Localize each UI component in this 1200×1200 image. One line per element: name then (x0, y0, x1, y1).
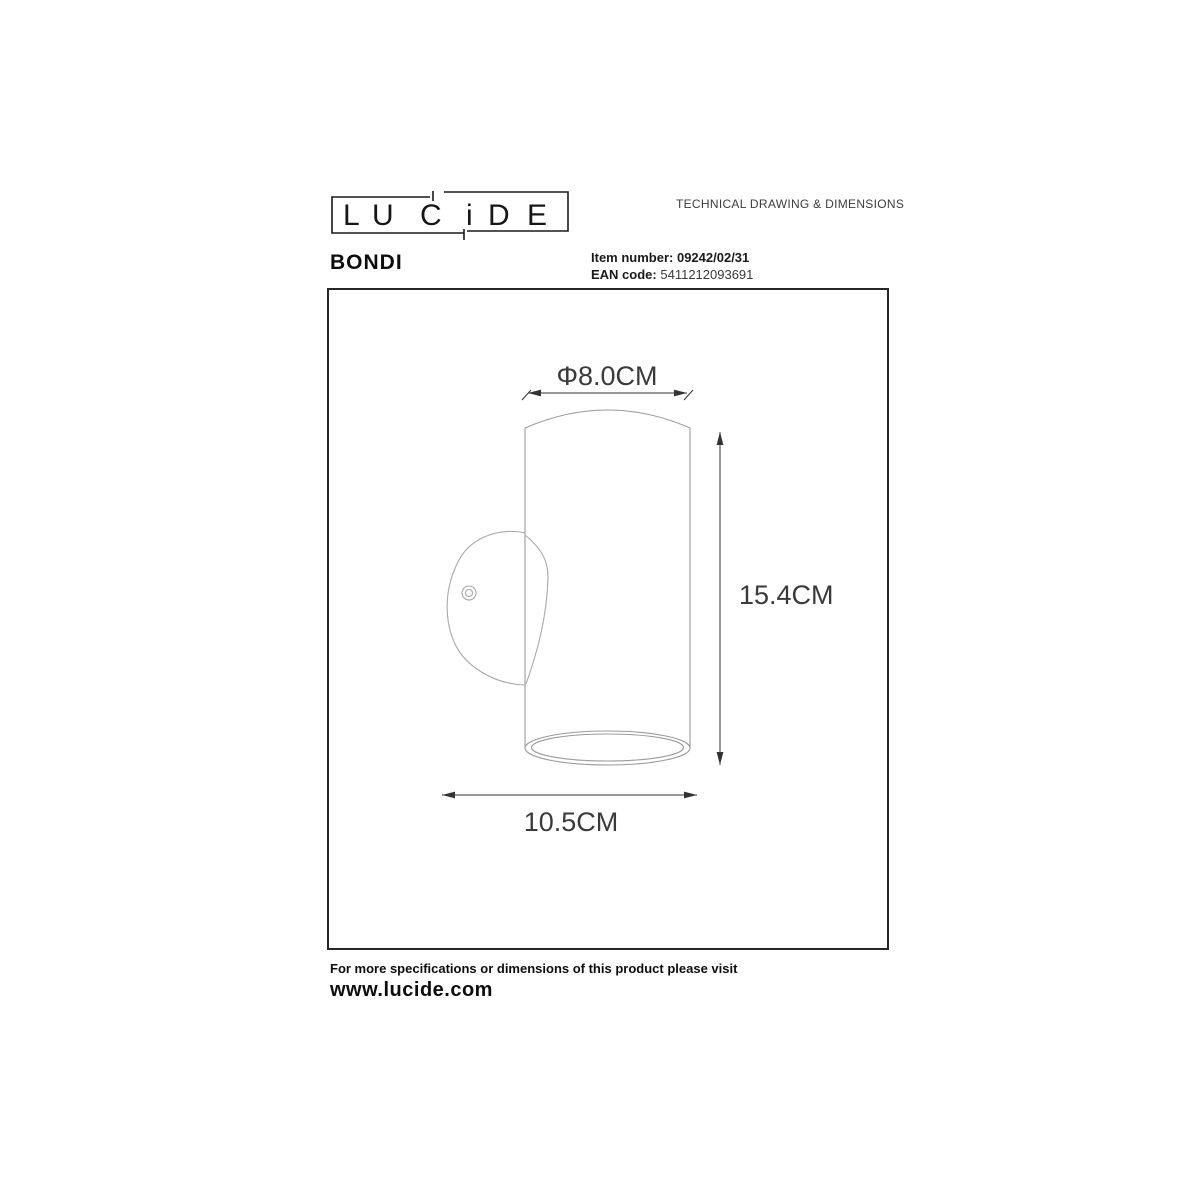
product-info: Item number: 09242/02/31 EAN code: 54112… (591, 249, 753, 283)
doc-title: TECHNICAL DRAWING & DIMENSIONS (676, 197, 904, 211)
dim-height-arrow-bottom (717, 752, 724, 765)
logo-letter-u: U (372, 199, 394, 232)
dim-tick (522, 390, 531, 400)
cylinder-bottom-lens (532, 734, 684, 761)
ean-label: EAN code: (591, 267, 657, 282)
dim-diameter-label: Φ8.0CM (556, 361, 657, 391)
bracket-outline (447, 531, 525, 685)
logo-letter-i: i (466, 199, 473, 232)
cylinder-body (525, 410, 690, 765)
logo-letters: L U C i D E (343, 199, 547, 232)
footer-note: For more specifications or dimensions of… (330, 961, 737, 976)
item-number-label: Item number: (591, 250, 673, 265)
logo-letter-d: D (488, 199, 510, 232)
bracket-seam (525, 535, 548, 684)
dim-depth-arrow-left (442, 792, 455, 799)
dim-tick (684, 390, 693, 400)
dim-height: 15.4CM (717, 432, 834, 765)
cylinder-bottom-rim (525, 731, 690, 765)
lucide-logo: L U C i D E (330, 184, 572, 242)
screw-outer (462, 586, 476, 600)
drawing-box: Φ8.0CM 15.4CM 10.5CM (327, 288, 889, 950)
footer: For more specifications or dimensions of… (330, 961, 737, 1002)
dim-depth-arrow-right (684, 792, 697, 799)
logo-letter-e: E (527, 199, 547, 232)
dim-depth: 10.5CM (442, 792, 697, 837)
item-number-line: Item number: 09242/02/31 (591, 249, 753, 266)
cylinder-top-arc (525, 410, 690, 428)
item-number-value: 09242/02/31 (677, 250, 749, 265)
ean-line: EAN code: 5411212093691 (591, 266, 753, 283)
dim-diameter-arrow-right (674, 390, 687, 397)
technical-drawing: Φ8.0CM 15.4CM 10.5CM (329, 290, 887, 948)
dim-height-label: 15.4CM (739, 580, 834, 610)
screw-inner (466, 590, 473, 597)
logo-letter-l: L (343, 199, 360, 232)
product-name: BONDI (330, 251, 403, 275)
website-url: www.lucide.com (330, 979, 737, 1002)
page: L U C i D E TECHNICAL DRAWING & DIMENSIO… (0, 0, 1200, 1200)
mount-bracket (447, 531, 548, 685)
dim-height-arrow-top (717, 432, 724, 445)
ean-value: 5411212093691 (660, 267, 753, 282)
logo-letter-c: C (420, 199, 442, 232)
dim-depth-label: 10.5CM (524, 807, 619, 837)
dim-diameter: Φ8.0CM (522, 361, 693, 400)
